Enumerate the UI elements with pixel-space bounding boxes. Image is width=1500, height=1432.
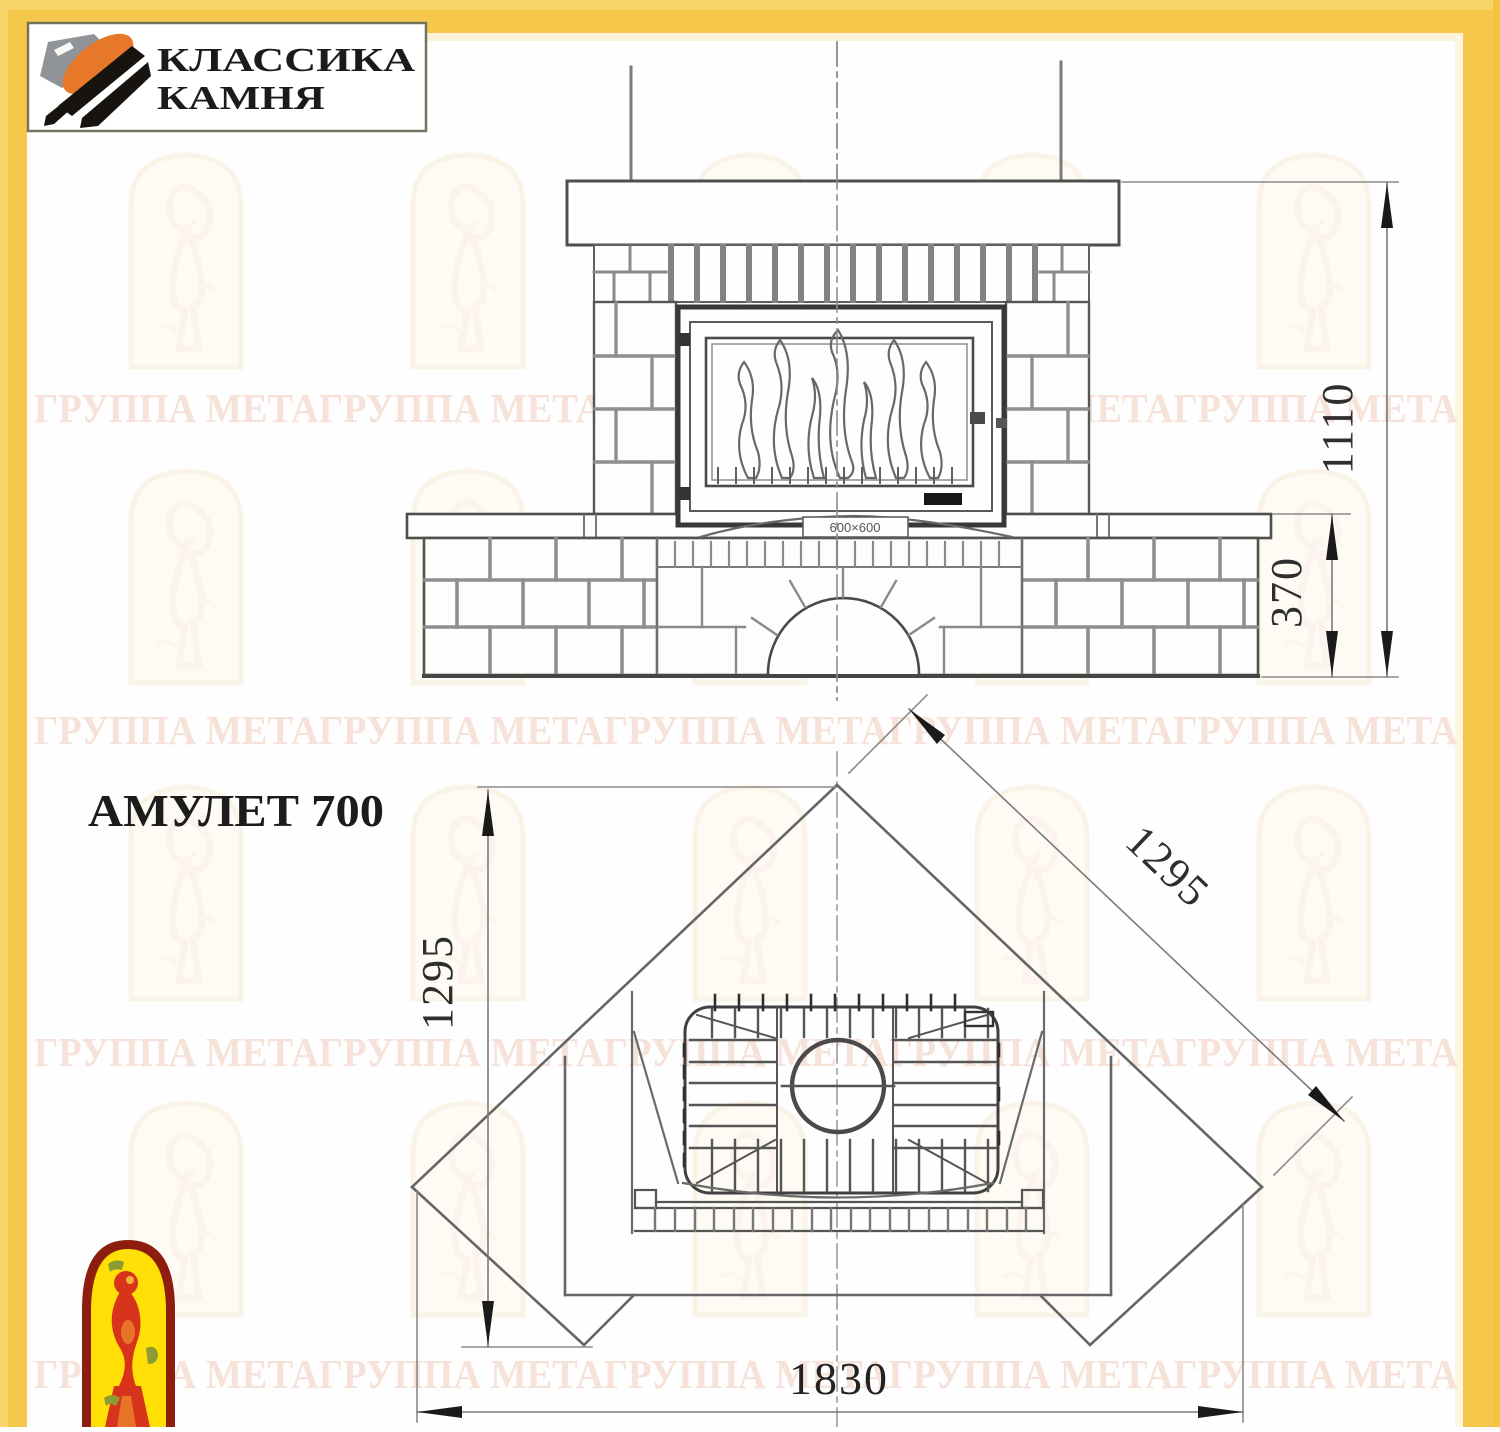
svg-text:1295: 1295 [413,934,462,1030]
svg-text:1830: 1830 [789,1353,889,1404]
svg-text:КАМНЯ: КАМНЯ [157,80,325,117]
svg-text:1110: 1110 [1313,382,1362,475]
svg-text:АМУЛЕТ 700: АМУЛЕТ 700 [88,785,384,836]
svg-text:ГРУППА МЕТАГРУППА МЕТАГРУППА М: ГРУППА МЕТАГРУППА МЕТАГРУППА МЕТАГРУППА … [34,1029,1458,1075]
svg-text:370: 370 [1262,556,1311,628]
svg-text:ГРУППА МЕТАГРУППА МЕТАГРУППА М: ГРУППА МЕТАГРУППА МЕТАГРУППА МЕТАГРУППА … [34,707,1458,753]
svg-text:ГРУППА МЕТАГРУППА МЕТАГРУППА М: ГРУППА МЕТАГРУППА МЕТАГРУППА МЕТАГРУППА … [34,1351,1458,1397]
svg-text:КЛАССИКА: КЛАССИКА [157,42,416,79]
